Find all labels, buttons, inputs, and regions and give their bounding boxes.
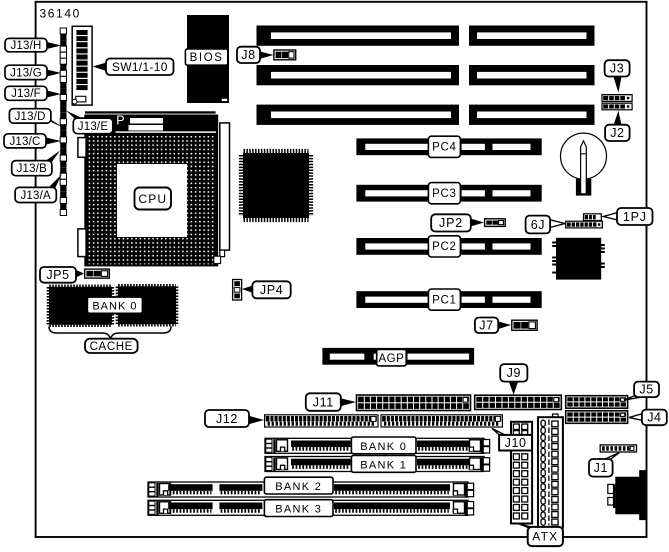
svg-text:SW1/1-10: SW1/1-10 bbox=[112, 60, 168, 74]
svg-text:BIOS: BIOS bbox=[190, 52, 224, 64]
svg-text:J11: J11 bbox=[313, 395, 334, 409]
svg-text:J1: J1 bbox=[594, 461, 608, 475]
svg-text:J13/E: J13/E bbox=[78, 121, 109, 133]
svg-text:JP5: JP5 bbox=[46, 268, 69, 282]
svg-text:JP4: JP4 bbox=[260, 283, 283, 297]
svg-text:J4: J4 bbox=[647, 411, 661, 425]
svg-text:BANK 0: BANK 0 bbox=[92, 301, 137, 313]
svg-text:J13/A: J13/A bbox=[20, 190, 51, 202]
svg-text:BANK 0: BANK 0 bbox=[360, 441, 407, 453]
svg-text:ATX: ATX bbox=[532, 530, 558, 544]
svg-text:JP2: JP2 bbox=[439, 216, 463, 230]
svg-text:PC3: PC3 bbox=[432, 188, 456, 200]
svg-text:AGP: AGP bbox=[379, 353, 405, 365]
svg-text:J13/H: J13/H bbox=[10, 40, 41, 52]
svg-text:CPU: CPU bbox=[138, 192, 167, 206]
svg-text:J3: J3 bbox=[610, 62, 624, 76]
svg-text:J13/D: J13/D bbox=[15, 111, 46, 123]
svg-text:J2: J2 bbox=[610, 126, 624, 140]
svg-text:PC2: PC2 bbox=[432, 241, 456, 253]
svg-text:J13/F: J13/F bbox=[11, 88, 41, 100]
svg-text:J13/C: J13/C bbox=[9, 136, 40, 148]
svg-text:J13/B: J13/B bbox=[17, 163, 48, 175]
svg-text:J7: J7 bbox=[479, 319, 493, 333]
svg-text:PC1: PC1 bbox=[432, 294, 456, 306]
svg-text:J10: J10 bbox=[505, 436, 527, 450]
svg-text:J13/G: J13/G bbox=[10, 67, 42, 79]
svg-text:BANK 1: BANK 1 bbox=[360, 459, 407, 471]
svg-text:P: P bbox=[116, 113, 124, 127]
svg-text:BANK 3: BANK 3 bbox=[275, 504, 322, 516]
svg-text:J12: J12 bbox=[216, 412, 238, 426]
svg-text:36140: 36140 bbox=[40, 7, 81, 21]
svg-text:6J: 6J bbox=[531, 218, 545, 232]
svg-text:CACHE: CACHE bbox=[90, 341, 133, 353]
svg-text:J5: J5 bbox=[639, 383, 653, 397]
svg-text:PC4: PC4 bbox=[432, 142, 456, 154]
svg-text:J8: J8 bbox=[241, 48, 255, 62]
svg-text:J9: J9 bbox=[507, 366, 521, 380]
svg-text:1PJ: 1PJ bbox=[623, 210, 647, 224]
svg-text:BANK 2: BANK 2 bbox=[275, 481, 322, 493]
